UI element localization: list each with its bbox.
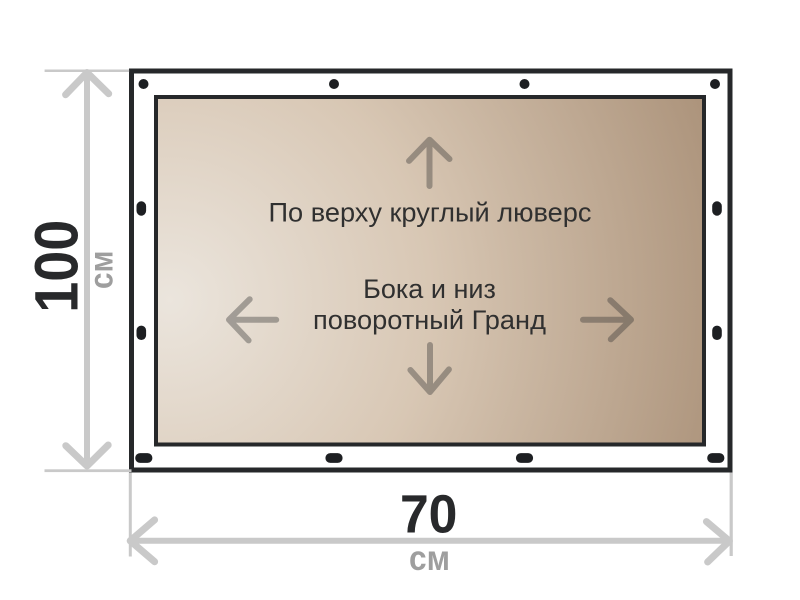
svg-text:см: см [409,538,450,578]
svg-text:см: см [84,251,121,290]
svg-text:По верху круглый люверс: По верху круглый люверс [269,197,592,227]
svg-text:70: 70 [400,485,458,545]
svg-text:100: 100 [23,220,91,313]
svg-text:Бока и низ: Бока и низ [363,274,496,304]
svg-text:поворотный Гранд: поворотный Гранд [313,305,546,335]
